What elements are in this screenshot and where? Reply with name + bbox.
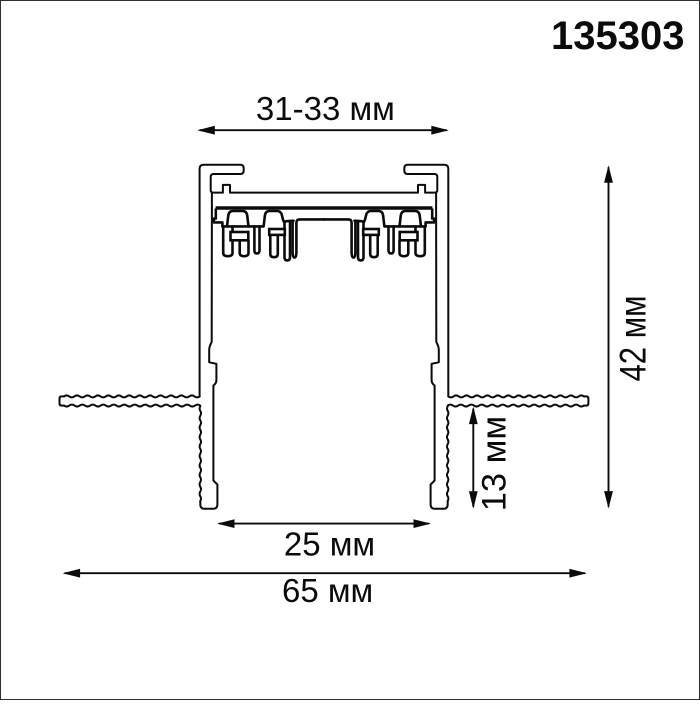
svg-text:25 мм: 25 мм xyxy=(284,525,375,562)
svg-text:42 мм: 42 мм xyxy=(613,296,654,382)
svg-text:13 мм: 13 мм xyxy=(475,416,513,511)
svg-text:31-33 мм: 31-33 мм xyxy=(256,90,395,127)
svg-text:65 мм: 65 мм xyxy=(282,572,373,609)
svg-text:135303: 135303 xyxy=(551,14,684,58)
